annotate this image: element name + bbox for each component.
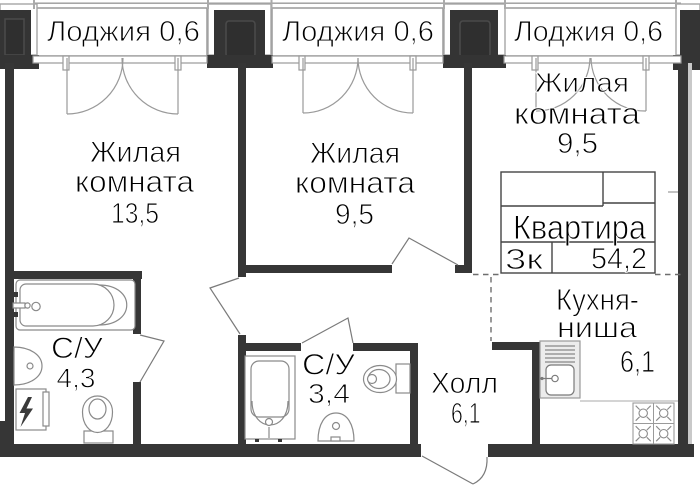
- svg-text:комната: комната: [295, 165, 416, 200]
- svg-text:Лоджия 0,6: Лоджия 0,6: [282, 16, 434, 48]
- svg-text:С/У: С/У: [302, 349, 356, 382]
- svg-text:Квартира: Квартира: [513, 209, 646, 247]
- svg-text:комната: комната: [75, 164, 195, 199]
- svg-text:9,5: 9,5: [335, 199, 374, 231]
- svg-text:Жилая: Жилая: [535, 67, 629, 98]
- svg-text:54,2: 54,2: [591, 243, 647, 276]
- svg-text:Лоджия 0,6: Лоджия 0,6: [514, 16, 663, 48]
- svg-text:Лоджия 0,6: Лоджия 0,6: [47, 16, 200, 48]
- svg-text:4,3: 4,3: [57, 363, 96, 394]
- svg-text:С/У: С/У: [51, 332, 104, 365]
- svg-text:6,1: 6,1: [451, 398, 481, 430]
- svg-text:13,5: 13,5: [111, 198, 159, 230]
- svg-text:3,4: 3,4: [308, 378, 350, 409]
- svg-text:комната: комната: [514, 96, 641, 131]
- svg-text:3к: 3к: [505, 244, 543, 276]
- svg-text:ниша: ниша: [557, 312, 637, 345]
- svg-text:6,1: 6,1: [620, 344, 655, 379]
- svg-text:Холл: Холл: [431, 367, 498, 400]
- svg-text:9,5: 9,5: [557, 128, 598, 160]
